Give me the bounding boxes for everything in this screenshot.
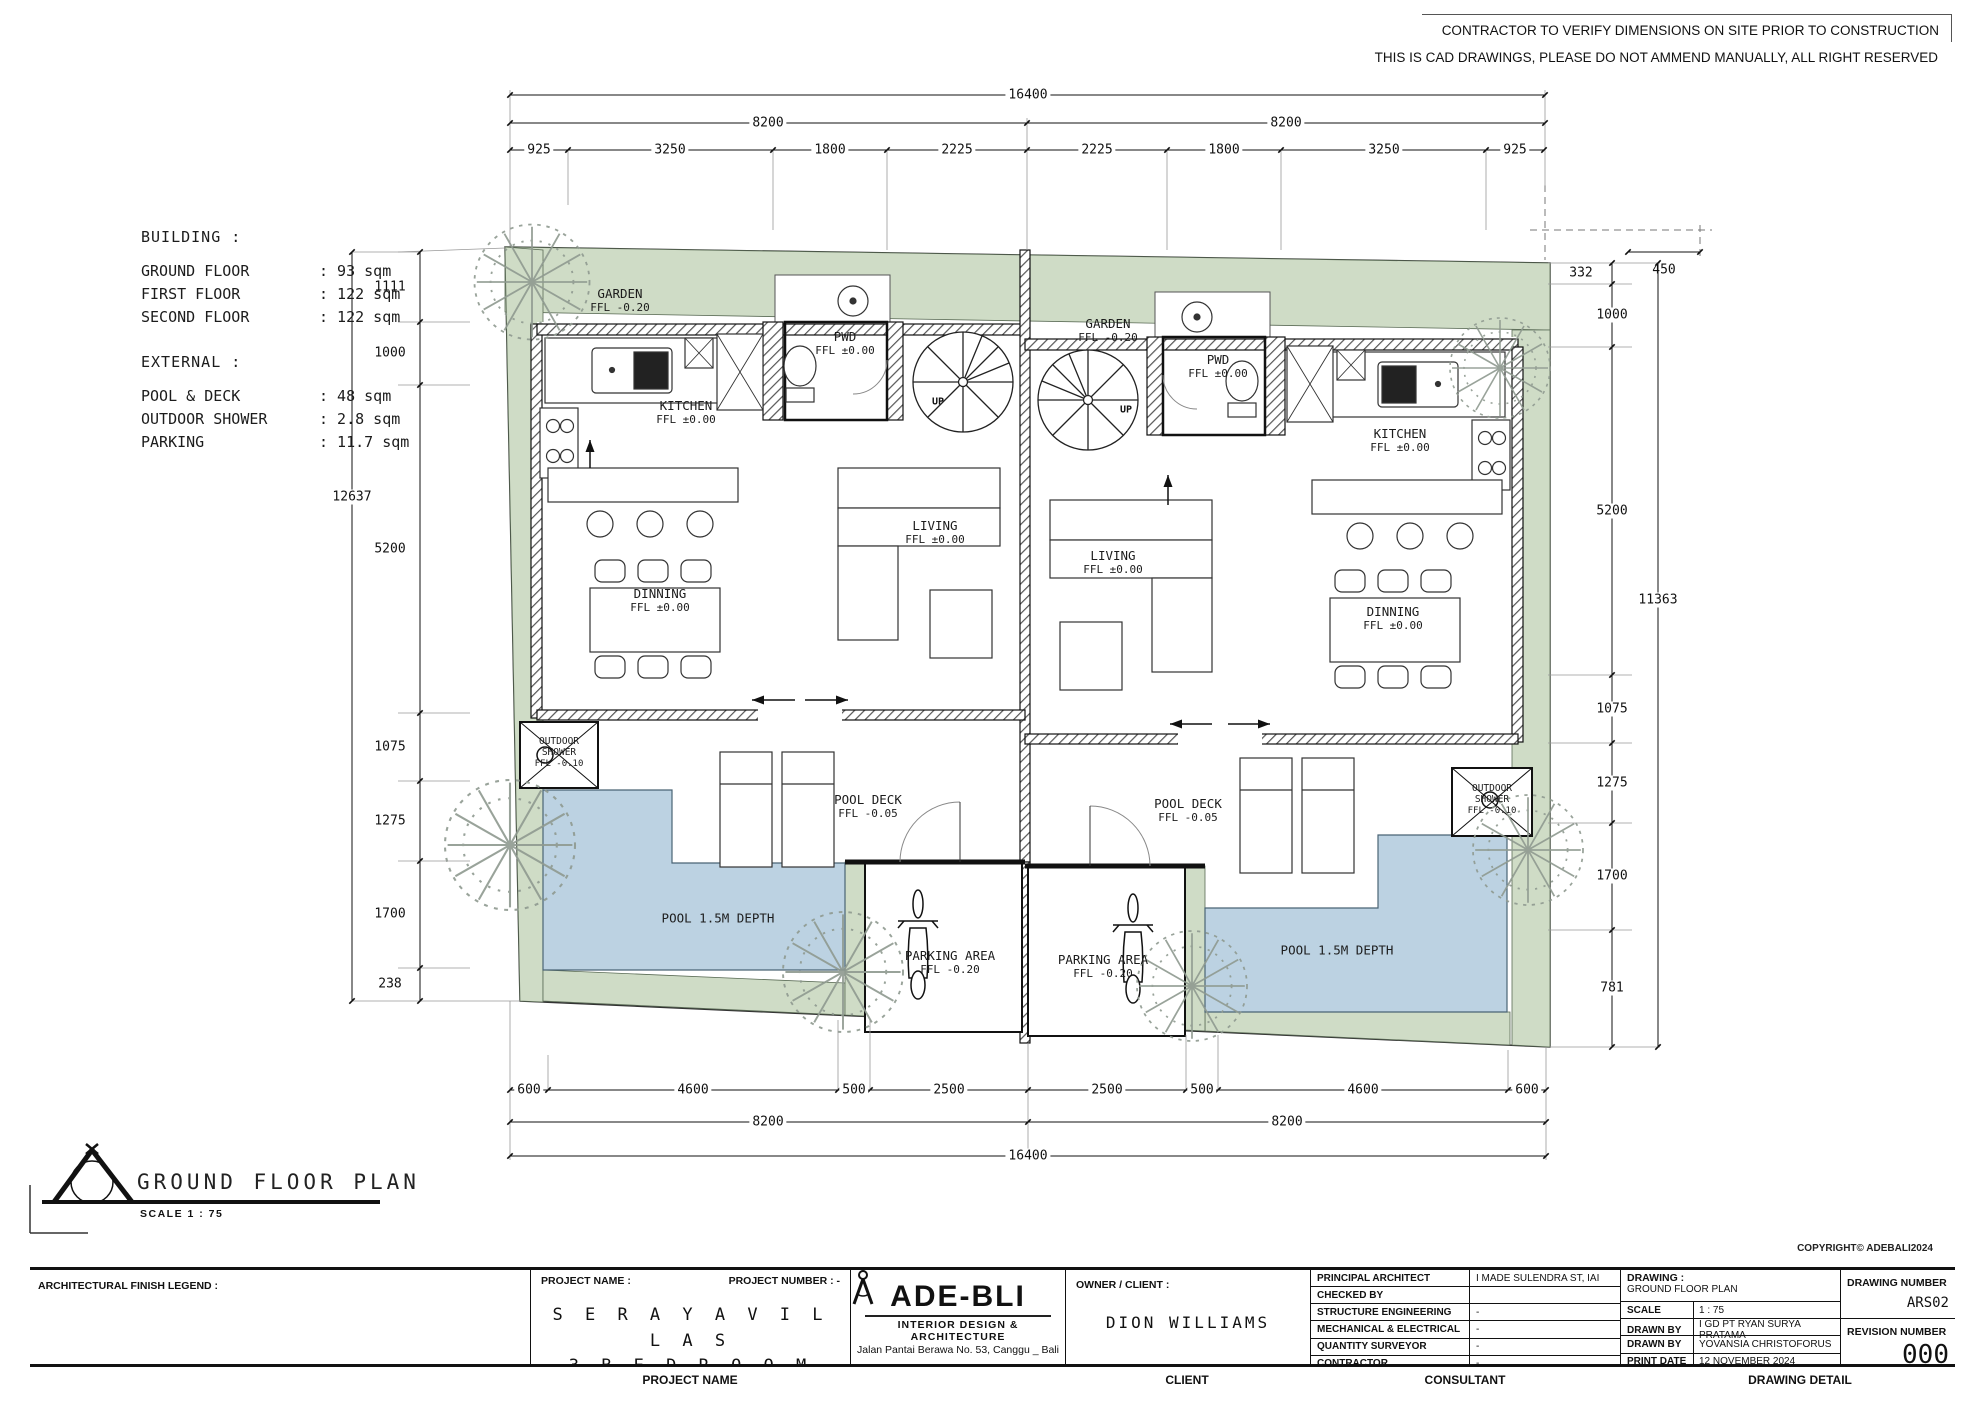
compass-icon [42, 1144, 140, 1203]
consultant-role: PRINCIPAL ARCHITECT [1311, 1273, 1469, 1284]
project-name-line1: S E R A Y A V I L L A S [541, 1303, 840, 1354]
consultant-value: - [1469, 1356, 1620, 1364]
detail-value: 1 : 75 [1693, 1302, 1840, 1318]
legend-label: ARCHITECTURAL FINISH LEGEND : [38, 1280, 218, 1292]
project-name-label: PROJECT NAME : [541, 1275, 631, 1287]
project-name-line2: 3 B E D R O O M [541, 1354, 840, 1364]
consultant-value: I MADE SULENDRA ST, IAI [1469, 1270, 1620, 1286]
sliding-door-gap-right [1178, 731, 1262, 747]
detail-label: PRINT DATE [1621, 1356, 1693, 1364]
logo-text-left: ADE-B [890, 1282, 995, 1312]
title-block: ARCHITECTURAL FINISH LEGEND : PROJECT NA… [30, 1267, 1955, 1395]
logo-tagline: INTERIOR DESIGN & ARCHITECTURE [865, 1315, 1051, 1343]
drawing-number-label: DRAWING NUMBER [1847, 1277, 1947, 1289]
outdoor-shower-left [520, 722, 598, 788]
owner-label: OWNER / CLIENT : [1076, 1279, 1169, 1291]
floor-plan-sheet: CONTRACTOR TO VERIFY DIMENSIONS ON SITE … [0, 0, 1985, 1403]
consultant-value [1469, 1287, 1620, 1303]
outdoor-shower-right [1452, 768, 1532, 836]
footer-label-project-name: PROJECT NAME [642, 1373, 737, 1387]
footer-label-client: CLIENT [1165, 1373, 1208, 1387]
drawing-value: GROUND FLOOR PLAN [1627, 1284, 1738, 1295]
drawing-label: DRAWING : [1627, 1272, 1834, 1284]
detail-label: DRAWN BY [1621, 1325, 1693, 1336]
revision-label: REVISION NUMBER [1847, 1326, 1946, 1338]
drawing-number: ARS02 [1847, 1295, 1949, 1311]
footer-label-drawing-detail: DRAWING DETAIL [1748, 1373, 1852, 1387]
sliding-door-gap-left [758, 707, 842, 723]
compass-logo-icon [851, 1270, 875, 1306]
consultant-value: - [1469, 1321, 1620, 1337]
logo-text-right: LI [995, 1282, 1026, 1312]
footer-label-consultant: CONSULTANT [1425, 1373, 1506, 1387]
consultant-role: QUANTITY SURVEYOR [1311, 1341, 1469, 1352]
detail-value: YOVANSIA CHRISTOFORUS [1693, 1336, 1840, 1352]
consultant-role: CHECKED BY [1311, 1290, 1469, 1301]
project-number-label: PROJECT NUMBER : - [729, 1275, 840, 1287]
revision-number: 000 [1847, 1340, 1949, 1365]
detail-label: DRAWN BY [1621, 1339, 1693, 1350]
spiral-stair-right [1038, 350, 1138, 450]
architect-logo: ADE-B LI INTERIOR DESIGN & ARCHITECTURE … [850, 1270, 1065, 1364]
consultant-role: STRUCTURE ENGINEERING [1311, 1307, 1469, 1318]
spiral-stair-left [913, 332, 1013, 432]
logo-address: Jalan Pantai Berawa No. 53, Canggu _ Bal… [857, 1344, 1059, 1356]
floor-plan-drawing [0, 0, 1985, 1403]
detail-value: 12 NOVEMBER 2024 [1693, 1354, 1840, 1364]
owner-value: DION WILLIAMS [1076, 1313, 1300, 1332]
consultant-value: - [1469, 1304, 1620, 1320]
detail-label: SCALE [1621, 1305, 1693, 1316]
consultant-value: - [1469, 1339, 1620, 1355]
consultant-table: PRINCIPAL ARCHITECTI MADE SULENDRA ST, I… [1310, 1270, 1620, 1364]
reference-lines [1530, 185, 1712, 260]
consultant-role: CONTRACTOR [1311, 1358, 1469, 1364]
drawing-detail-table: DRAWING : GROUND FLOOR PLAN SCALE1 : 75 … [1620, 1270, 1840, 1364]
consultant-role: MECHANICAL & ELECTRICAL [1311, 1324, 1469, 1335]
